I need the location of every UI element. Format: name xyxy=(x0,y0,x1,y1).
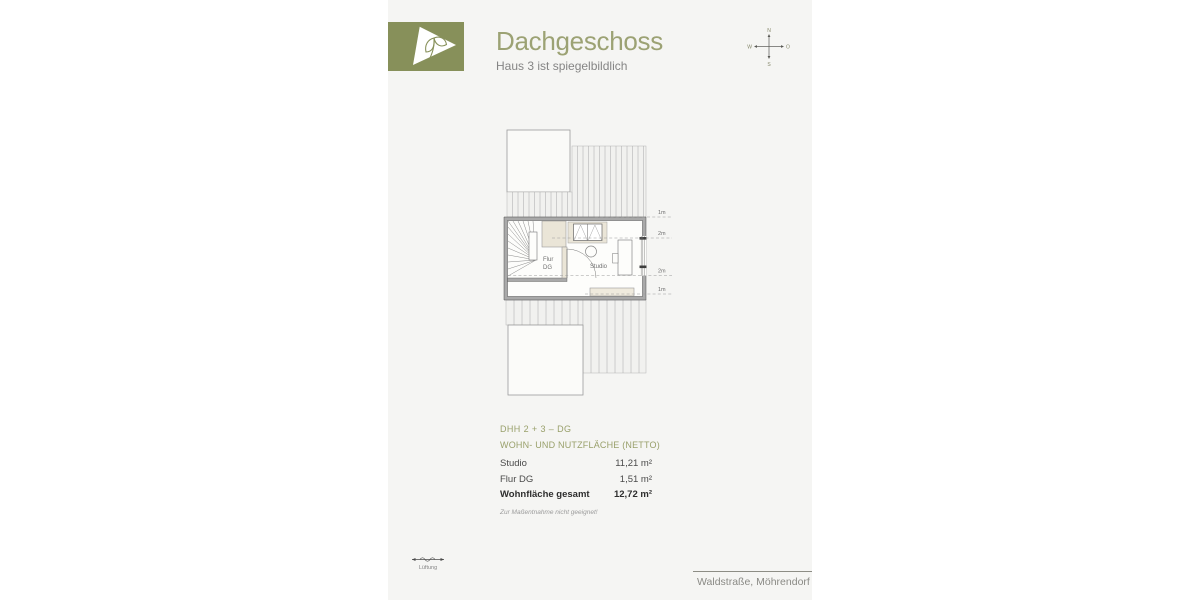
ventilation-icon xyxy=(411,555,445,564)
table-title: DHH 2 + 3 – DG xyxy=(500,424,652,434)
table-row-flur: Flur DG 1,51 m² xyxy=(500,474,652,485)
table-total-row: Wohnfläche gesamt 12,72 m² xyxy=(500,489,652,500)
table-subtitle: WOHN- UND NUTZFLÄCHE (NETTO) xyxy=(500,440,652,450)
compass-icon: N S W O xyxy=(741,25,797,71)
chair xyxy=(613,254,619,264)
stair-well xyxy=(529,232,537,260)
ventilation-legend: Lüftung xyxy=(411,555,445,571)
roof-hatch-bottom-right xyxy=(583,300,646,373)
desk xyxy=(618,240,632,275)
footer-divider xyxy=(693,571,812,572)
door-wall-stub xyxy=(562,247,567,278)
area-table: DHH 2 + 3 – DG WOHN- UND NUTZFLÄCHE (NET… xyxy=(500,424,652,516)
total-value: 12,72 m² xyxy=(614,489,652,500)
room-label-studio: Studio xyxy=(590,264,608,270)
room-label-flur-line1: Flur xyxy=(543,257,553,263)
leaf-triangle-icon xyxy=(388,22,464,71)
row-label: Flur DG xyxy=(500,474,533,485)
vent-circle xyxy=(586,246,597,257)
disclaimer-note: Zur Maßentnahme nicht geeignet! xyxy=(500,509,652,516)
room-label-flur-line2: DG xyxy=(543,265,552,271)
page: Dachgeschoss Haus 3 ist spiegelbildlich … xyxy=(388,0,812,600)
ventilation-label: Lüftung xyxy=(411,565,445,571)
closet xyxy=(542,221,566,247)
compass-south-label: S xyxy=(767,62,771,68)
dim-label-1m-bottom: 1m xyxy=(658,287,666,293)
compass-east-label: O xyxy=(786,45,790,51)
roof-hatch-bottom-left xyxy=(506,300,583,325)
compass-west-label: W xyxy=(747,45,752,51)
right-wall-window xyxy=(640,236,647,276)
floor-plan: 1m 2m 2m 1m Flur DG Studio xyxy=(500,128,685,400)
table-row-studio: Studio 11,21 m² xyxy=(500,458,652,469)
brochure-sheet: Dachgeschoss Haus 3 ist spiegelbildlich … xyxy=(0,0,1200,600)
dim-label-1m-top: 1m xyxy=(658,210,666,216)
page-subtitle: Haus 3 ist spiegelbildlich xyxy=(496,59,627,73)
compass-north-label: N xyxy=(767,28,771,34)
dormer-outline-lower xyxy=(508,325,583,395)
dormer-outline xyxy=(507,130,570,192)
roof-hatch-top-right xyxy=(572,146,646,217)
total-label: Wohnfläche gesamt xyxy=(500,489,590,500)
footer-address: Waldstraße, Möhrendorf xyxy=(697,576,810,588)
row-value: 1,51 m² xyxy=(620,474,652,485)
interior-wall xyxy=(508,278,568,282)
dim-label-2m-top: 2m xyxy=(658,231,666,237)
company-logo xyxy=(388,22,464,71)
roof-hatch-top-left xyxy=(507,192,572,217)
sideboard xyxy=(590,288,634,296)
row-value: 11,21 m² xyxy=(615,458,652,469)
dim-label-2m-bottom: 2m xyxy=(658,269,666,275)
page-title: Dachgeschoss xyxy=(496,26,663,57)
row-label: Studio xyxy=(500,458,527,469)
skylight-window xyxy=(568,222,607,243)
